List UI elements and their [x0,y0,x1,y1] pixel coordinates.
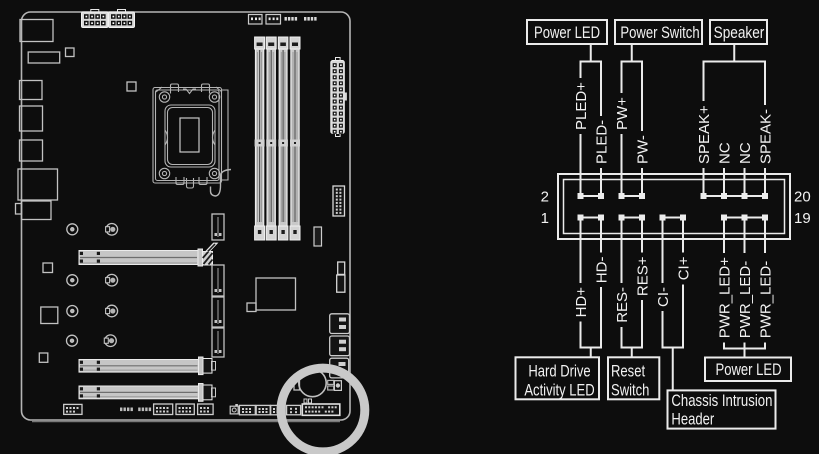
svg-text:CI-: CI- [655,287,672,307]
svg-text:PWR_LED-: PWR_LED- [737,261,754,339]
svg-text:PLED+: PLED+ [573,82,590,130]
svg-text:PW-: PW- [635,135,652,164]
svg-text:Chassis Intrusion: Chassis Intrusion [671,391,772,410]
svg-text:SPEAK-: SPEAK- [758,109,775,164]
svg-text:Speaker: Speaker [714,23,765,42]
svg-text:HD+: HD+ [573,287,590,318]
svg-text:20: 20 [794,189,811,206]
svg-text:RES-: RES- [614,287,631,323]
svg-text:Switch: Switch [611,381,649,400]
svg-text:PWR_LED+: PWR_LED+ [717,257,734,339]
svg-text:NC: NC [737,142,754,164]
svg-text:CI+: CI+ [676,256,693,280]
svg-text:PW+: PW+ [614,97,631,130]
svg-text:Reset: Reset [611,362,645,381]
svg-text:Power Switch: Power Switch [620,23,699,42]
svg-text:1: 1 [541,210,549,227]
svg-text:Power LED: Power LED [534,23,600,42]
svg-text:PLED-: PLED- [594,120,611,164]
svg-text:19: 19 [794,210,811,227]
svg-text:HD-: HD- [594,257,611,284]
svg-text:SPEAK+: SPEAK+ [696,105,713,164]
svg-text:NC: NC [717,142,734,164]
svg-text:Hard Drive: Hard Drive [528,362,590,381]
svg-text:2: 2 [541,189,549,206]
svg-text:Power LED: Power LED [716,360,782,379]
svg-text:RES+: RES+ [635,256,652,296]
svg-text:Header: Header [671,410,714,429]
svg-text:Activity LED: Activity LED [524,381,594,400]
svg-text:PWR_LED-: PWR_LED- [758,261,775,339]
